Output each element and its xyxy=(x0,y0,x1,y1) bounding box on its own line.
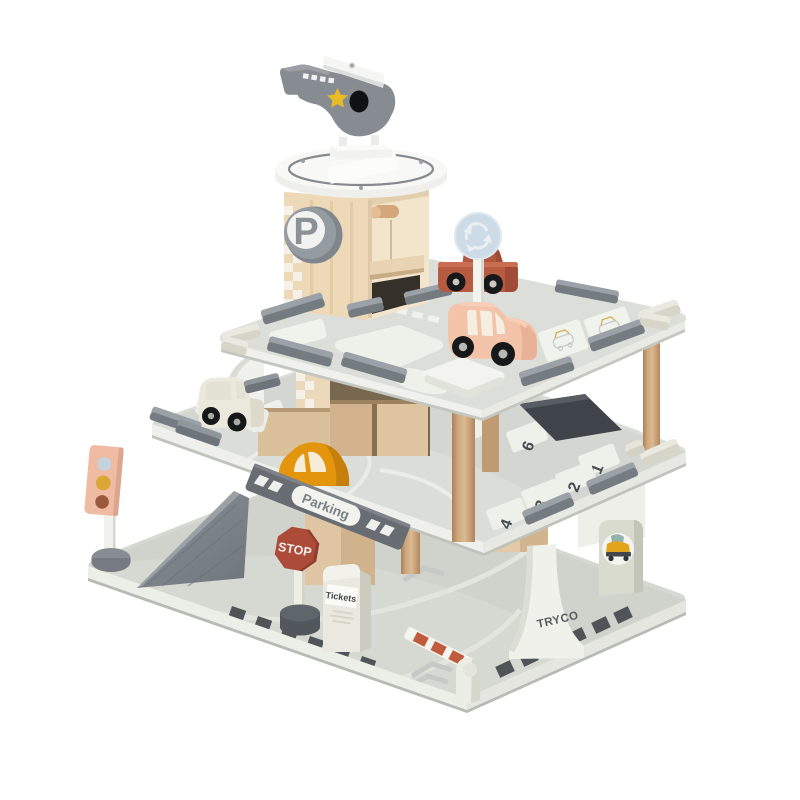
svg-text:P: P xyxy=(293,211,318,253)
